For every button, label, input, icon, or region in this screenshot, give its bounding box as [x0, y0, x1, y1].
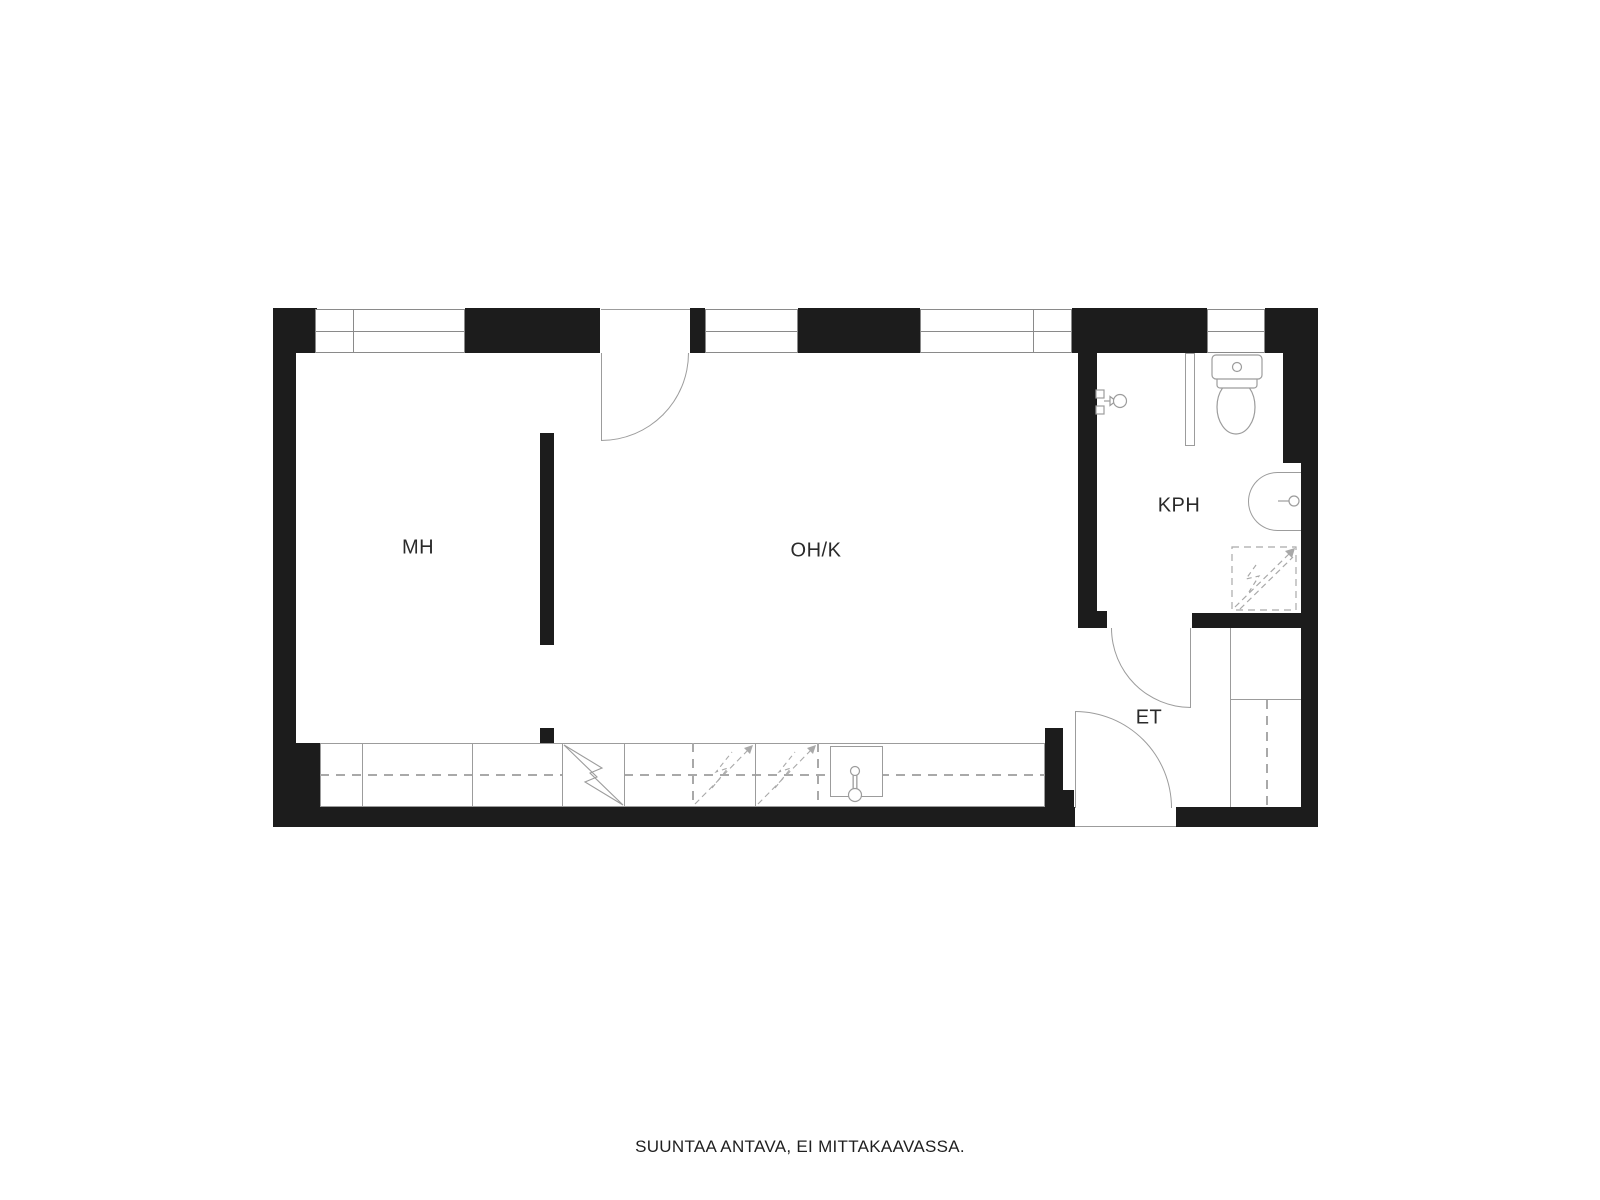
door-arc-ohk: [601, 353, 689, 441]
kitchen-counter-divider-dashed: [692, 743, 694, 807]
wall-top-stub: [690, 308, 705, 353]
shower-screen: [1185, 353, 1195, 446]
window-kph: [1207, 309, 1265, 353]
washbasin-icon: [1248, 472, 1301, 531]
window-glass-line: [921, 331, 1071, 332]
door-threshold-entrance: [1075, 826, 1176, 827]
wardrobe-dashed-line: [1266, 700, 1268, 807]
window-glass-line: [1208, 331, 1264, 332]
shower-area-symbol: [1232, 547, 1296, 610]
wall-kitchen-stub-foot: [1045, 790, 1074, 808]
room-label-mh: MH: [402, 537, 434, 560]
wall-bathroom-bottom: [1192, 613, 1318, 628]
wall-mh-divider: [540, 433, 554, 645]
shower-mixer-icon: [1096, 390, 1127, 414]
wall-top-segment-b: [798, 308, 920, 353]
window-ohk-1: [705, 309, 798, 353]
room-label-ohk: OH/K: [791, 540, 842, 563]
kitchen-counter-centerline: [320, 774, 1045, 776]
door-threshold-top: [601, 309, 690, 310]
disclaimer-caption: SUUNTAA ANTAVA, EI MITTAKAAVASSA.: [635, 1137, 965, 1157]
wall-bathroom-left-foot: [1078, 611, 1107, 628]
window-mullion: [353, 310, 354, 352]
door-arc-kph: [1111, 628, 1191, 708]
wall-bathroom-left: [1078, 353, 1097, 611]
wall-bottom-left-run: [273, 807, 1075, 827]
fixtures-overlay: [0, 0, 1600, 1200]
wall-right-lower: [1301, 463, 1318, 827]
wall-top-segment-c: [1072, 308, 1207, 353]
wall-top-right-corner: [1265, 308, 1318, 353]
window-mh: [315, 309, 465, 353]
window-mullion: [1033, 310, 1034, 352]
kitchen-counter-divider: [755, 743, 756, 807]
wardrobe-front-line: [1230, 628, 1231, 807]
wall-bottom-right-run: [1176, 807, 1318, 827]
room-label-et: ET: [1136, 707, 1163, 730]
kitchen-sink-icon: [830, 746, 883, 797]
wall-right-upper: [1283, 353, 1318, 463]
wall-top-left-jamb: [273, 308, 317, 353]
room-label-kph: KPH: [1158, 495, 1201, 518]
window-glass-line: [316, 331, 464, 332]
kitchen-counter-divider: [472, 743, 473, 807]
toilet-icon: [1212, 355, 1262, 434]
kitchen-counter-divider: [362, 743, 363, 807]
wall-top-segment-a: [465, 308, 600, 353]
kitchen-counter-divider-dashed: [817, 743, 819, 807]
refrigerator-symbol: [562, 743, 625, 807]
floorplan-canvas: MH OH/K KPH ET SUUNTAA ANTAVA, EI MITTAK…: [0, 0, 1600, 1200]
window-glass-line: [706, 331, 797, 332]
window-ohk-2: [920, 309, 1072, 353]
